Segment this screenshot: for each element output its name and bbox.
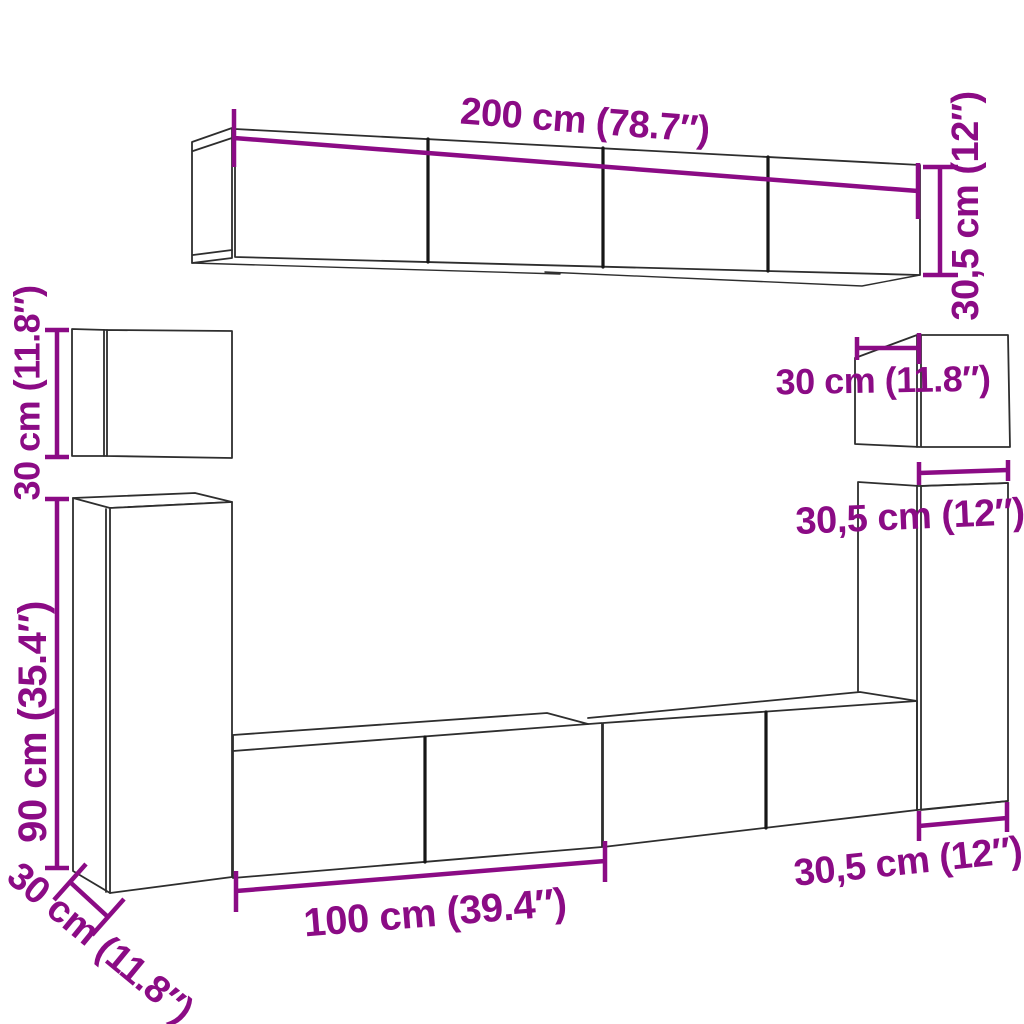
bottom-right-front-face bbox=[603, 701, 917, 847]
left-cube-front-face bbox=[107, 330, 232, 458]
dim-label-right-cube-depth: 30 cm (11.8″) bbox=[775, 358, 991, 403]
dim-line-left-cube-height bbox=[45, 330, 69, 457]
top-cabinet-front-face bbox=[235, 129, 920, 275]
dim-label-bottom-width: 100 cm (39.4″) bbox=[302, 881, 568, 946]
bottom-left-front-face bbox=[233, 723, 602, 878]
dim-label-left-cube-height: 30 cm (11.8″) bbox=[7, 286, 48, 501]
left-column-front-face bbox=[110, 502, 232, 893]
dim-label-right-column-width-bottom: 30,5 cm (12″) bbox=[792, 829, 1024, 895]
dim-label-top-height: 30,5 cm (12″) bbox=[945, 91, 987, 320]
tv-wall-cabinet-drawing: 200 cm (78.7″) 30,5 cm (12″) 30 cm (11.8… bbox=[0, 0, 1024, 1024]
top-wall-cabinet bbox=[192, 128, 920, 286]
top-cabinet-side-panel bbox=[192, 128, 232, 263]
left-column-cabinet bbox=[73, 493, 232, 893]
bottom-left-cabinet bbox=[233, 713, 602, 878]
left-column-side-edges bbox=[73, 498, 110, 893]
dim-line-right-column-width-top bbox=[919, 460, 1008, 485]
left-cube-cabinet bbox=[72, 329, 232, 458]
furniture-dimension-diagram: 200 cm (78.7″) 30,5 cm (12″) 30 cm (11.8… bbox=[0, 0, 1024, 1024]
bottom-right-cabinet bbox=[588, 692, 917, 847]
dim-label-left-column-height: 90 cm (35.4″) bbox=[11, 601, 55, 843]
left-cube-side-face bbox=[72, 329, 107, 456]
